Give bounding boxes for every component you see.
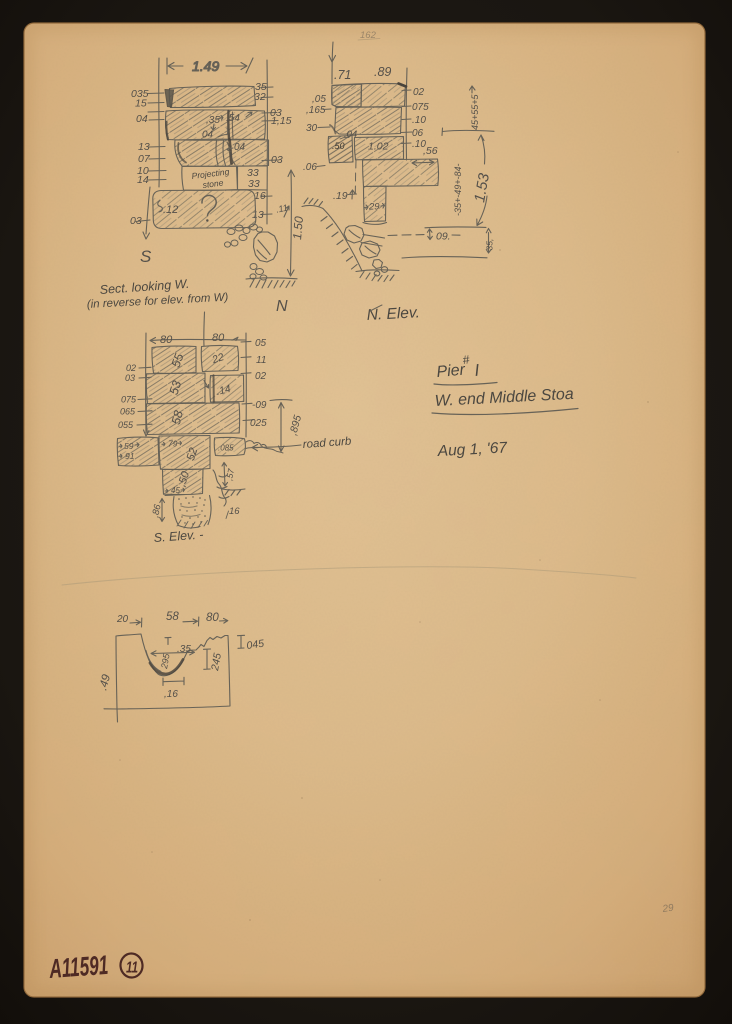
- svg-text:N: N: [276, 298, 288, 315]
- svg-text:79: 79: [168, 439, 178, 449]
- svg-text:45+55+5: 45+55+5: [470, 93, 480, 130]
- svg-text:,57: ,57: [224, 468, 236, 482]
- svg-text:04: 04: [136, 113, 148, 125]
- svg-text:025: 025: [250, 418, 267, 429]
- svg-text:04: 04: [234, 142, 246, 153]
- svg-text:29: 29: [661, 902, 675, 915]
- svg-text:045: 045: [246, 638, 265, 652]
- svg-text:,56: ,56: [423, 145, 438, 157]
- svg-text:45: 45: [171, 486, 180, 495]
- svg-text:14: 14: [137, 174, 149, 186]
- svg-text:055: 055: [118, 420, 134, 430]
- svg-text:N. Elev.: N. Elev.: [366, 304, 420, 324]
- svg-text:02: 02: [255, 371, 267, 382]
- svg-text:.06: .06: [303, 162, 317, 173]
- svg-text:,35: ,35: [206, 115, 220, 126]
- svg-text:32: 32: [254, 91, 266, 103]
- svg-text:A11591: A11591: [48, 950, 110, 984]
- svg-text:,16: ,16: [164, 689, 178, 700]
- svg-text:1.02: 1.02: [368, 141, 389, 153]
- svg-text:80: 80: [160, 334, 173, 346]
- svg-text:29: 29: [368, 202, 380, 213]
- svg-text:06: 06: [412, 128, 424, 139]
- svg-text:58: 58: [166, 611, 179, 623]
- svg-text:30: 30: [306, 123, 318, 134]
- svg-text:11: 11: [126, 960, 138, 977]
- svg-text:.50: .50: [332, 141, 345, 151]
- svg-text:80: 80: [206, 612, 219, 624]
- svg-text:13: 13: [138, 141, 150, 153]
- svg-text:33: 33: [248, 178, 260, 190]
- svg-text:11: 11: [256, 355, 266, 366]
- svg-text:,165: ,165: [306, 105, 326, 116]
- svg-text:1,15: 1,15: [271, 115, 292, 127]
- svg-text:16: 16: [229, 506, 240, 517]
- svg-text:1.49: 1.49: [192, 58, 219, 74]
- svg-text:15: 15: [135, 98, 147, 110]
- svg-text:.19: .19: [333, 190, 348, 202]
- svg-text:16: 16: [254, 190, 266, 202]
- svg-text:03: 03: [271, 154, 283, 166]
- svg-text:03: 03: [130, 215, 142, 227]
- svg-text:-09: -09: [252, 400, 267, 411]
- svg-text:35,: 35,: [485, 239, 495, 251]
- svg-text:.12: .12: [163, 204, 178, 216]
- svg-text:.71: .71: [334, 68, 351, 82]
- svg-text:.085: .085: [218, 444, 234, 453]
- svg-text:09.: 09.: [436, 231, 451, 243]
- svg-text:.10: .10: [412, 115, 426, 126]
- svg-text:59: 59: [124, 441, 134, 451]
- svg-text:065: 065: [120, 407, 136, 417]
- svg-text:.54: .54: [226, 113, 240, 124]
- svg-text:07: 07: [138, 153, 151, 165]
- svg-text:02: 02: [126, 363, 136, 373]
- svg-text:91: 91: [125, 451, 135, 461]
- svg-text:S: S: [140, 247, 152, 266]
- svg-text:80: 80: [212, 332, 225, 344]
- svg-text:,05: ,05: [312, 94, 326, 105]
- svg-text:-35+-49+-84-: -35+-49+-84-: [453, 163, 463, 216]
- svg-text:03: 03: [125, 373, 135, 383]
- svg-text:05: 05: [255, 338, 267, 349]
- svg-text:.89: .89: [374, 65, 391, 79]
- svg-text:02: 02: [413, 87, 425, 98]
- svg-text:Pier: Pier: [436, 362, 466, 381]
- svg-text:075: 075: [121, 395, 137, 405]
- svg-text:075: 075: [412, 102, 429, 113]
- svg-text:20: 20: [116, 614, 129, 625]
- svg-text:1.50: 1.50: [290, 215, 306, 240]
